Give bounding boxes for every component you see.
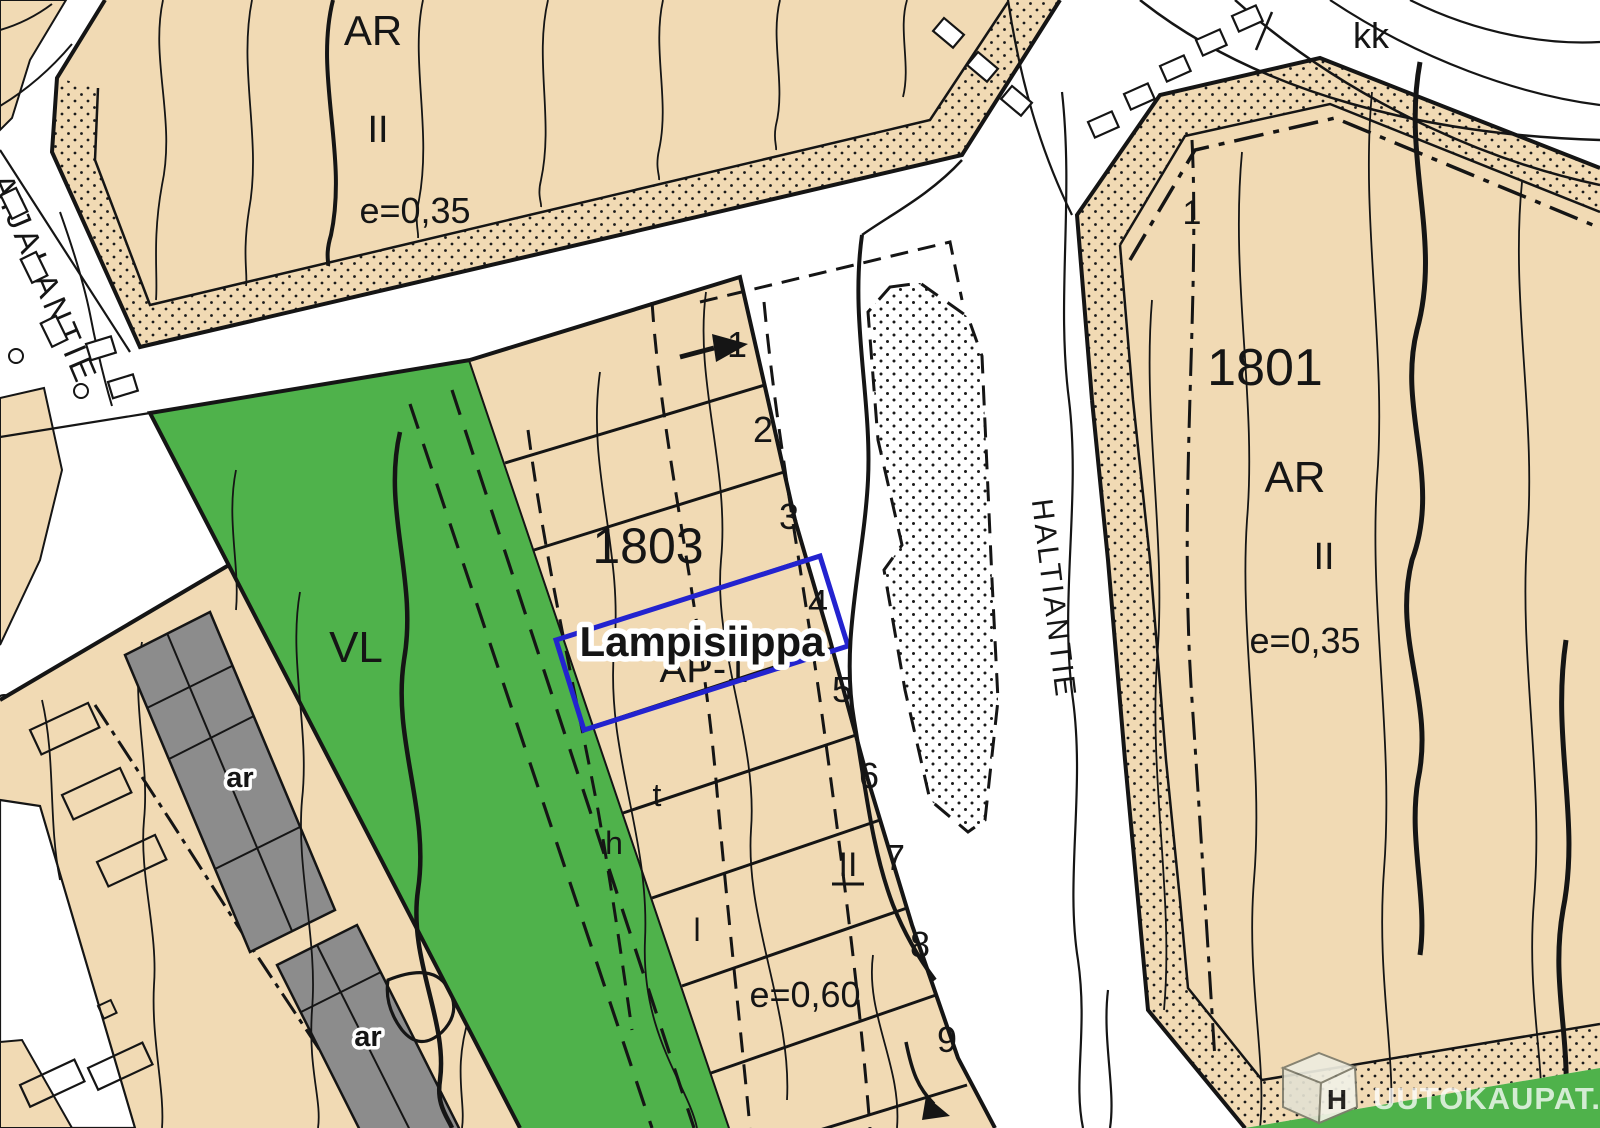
plan-mark-l: l (693, 912, 700, 948)
efficiency-label: e=0,60 (749, 974, 860, 1015)
lot-number: 9 (937, 1019, 957, 1060)
survey-point-marker (9, 349, 23, 363)
lot-number: 4 (808, 582, 828, 623)
lot-number: 3 (779, 496, 799, 537)
zone-label-ar: AR (344, 7, 402, 54)
lot-number: 1 (1183, 194, 1202, 232)
lot-number: 7 (885, 837, 905, 878)
highlight-lot-name: Lampisiippa (579, 618, 825, 665)
block-number-1801: 1801 (1207, 339, 1323, 397)
plan-mark-t: t (653, 777, 662, 813)
block-number-1803: 1803 (592, 518, 703, 574)
plan-mark-h: h (605, 825, 623, 861)
block-1801: 1 1801 AR II e=0,35 (1077, 58, 1600, 1128)
area-label-kk: kk (1353, 15, 1390, 56)
watermark-brand-text: UUTOKAUPAT.COM (1373, 1081, 1600, 1116)
zoning-map: AR II e=0,35 AIJALANTIE (0, 0, 1600, 1128)
storeys-label: II (367, 109, 388, 151)
zone-label-vl: VL (329, 623, 383, 672)
building-label-ar: ar (226, 762, 253, 794)
zone-label-ar: AR (1264, 453, 1325, 502)
storeys-label: II (1313, 536, 1334, 578)
building-label-ar: ar (354, 1021, 381, 1053)
zoning-map-svg: AR II e=0,35 AIJALANTIE (0, 0, 1600, 1128)
lot-number: 2 (753, 409, 773, 450)
watermark-logo-letter: H (1327, 1084, 1347, 1115)
efficiency-label: e=0,35 (1249, 620, 1360, 661)
efficiency-label: e=0,35 (359, 190, 470, 231)
storeys-label-underlined: II (839, 846, 858, 884)
